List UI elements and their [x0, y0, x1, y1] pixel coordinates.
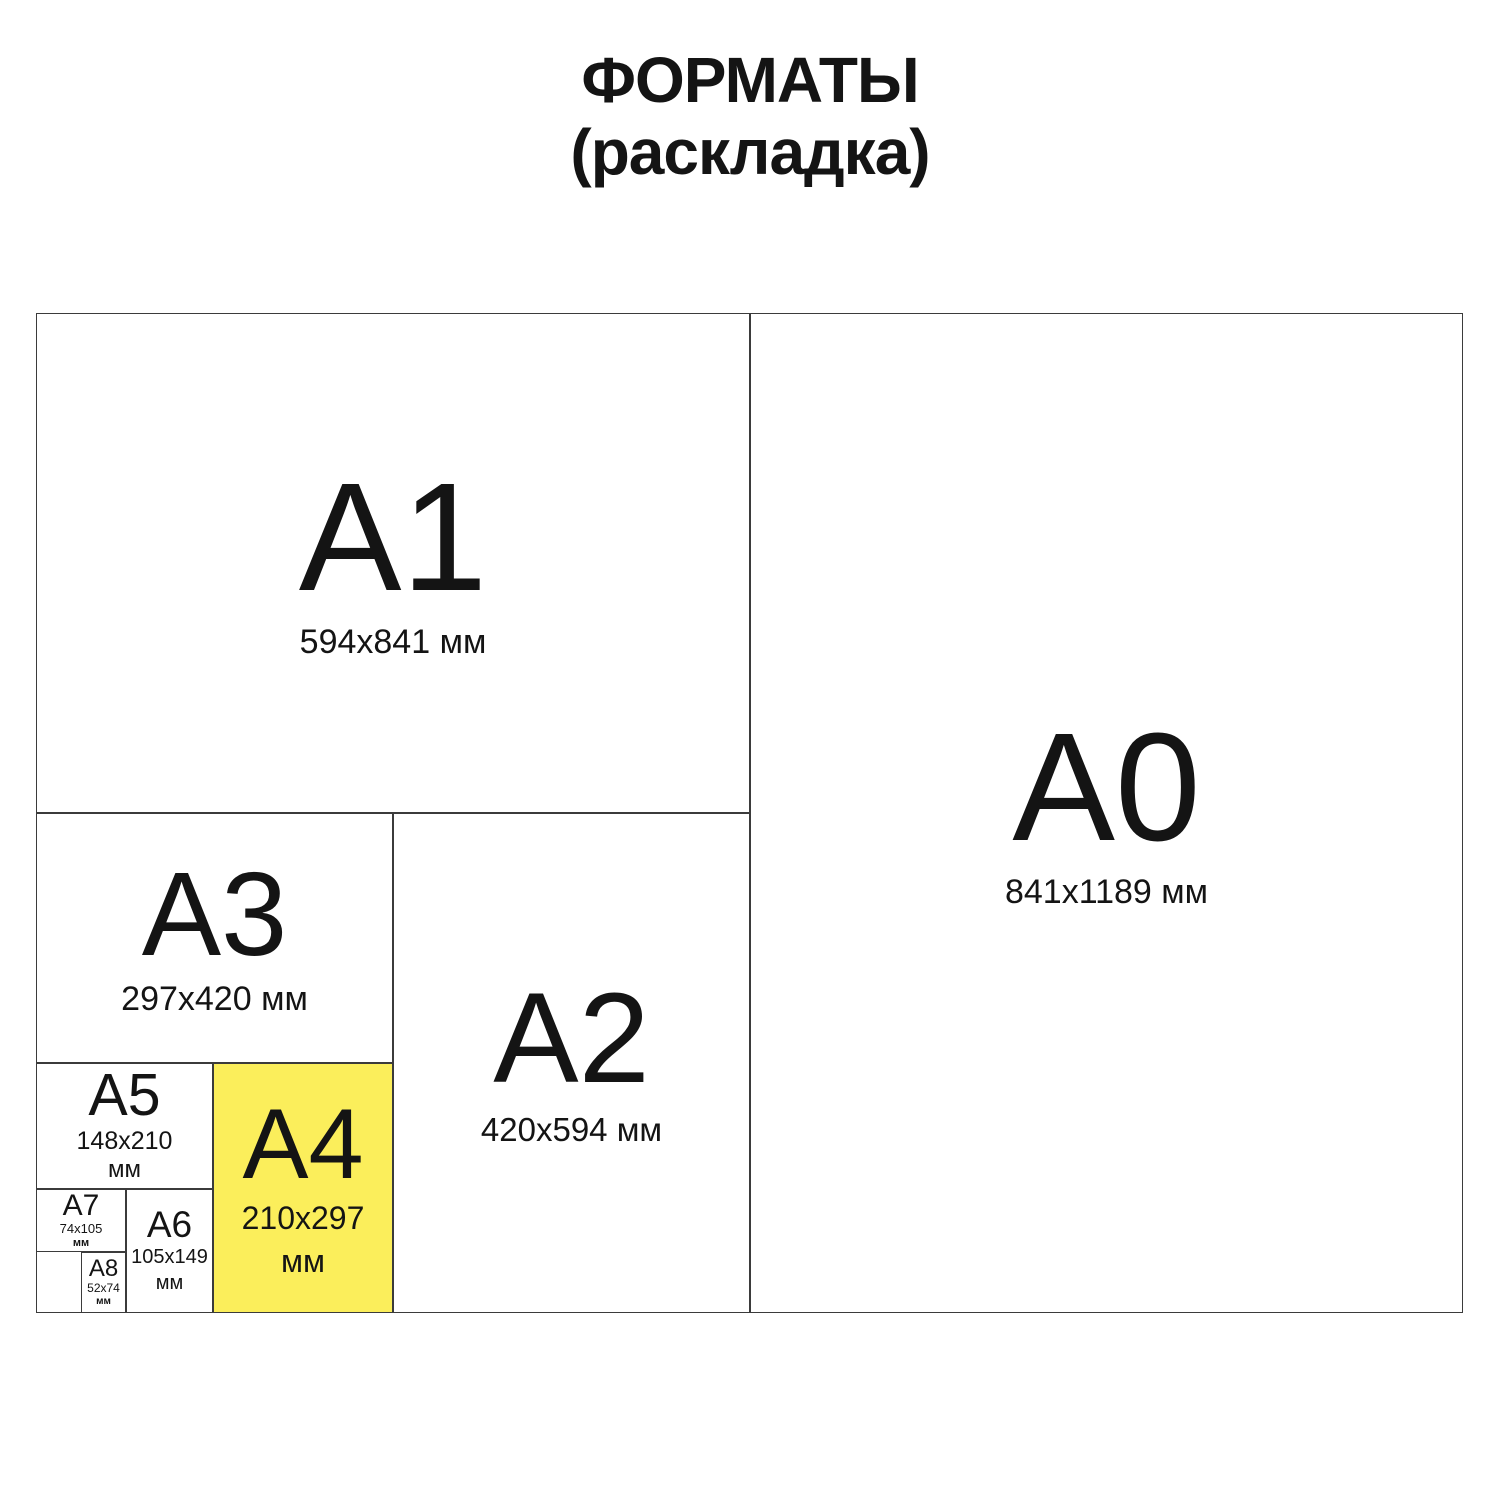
format-size: 52x74 — [87, 1282, 120, 1295]
format-unit: мм — [73, 1237, 89, 1249]
format-unit: мм — [108, 1157, 141, 1183]
format-label: A0 — [1012, 714, 1200, 860]
format-box-a6: A6 105x149 мм — [126, 1189, 213, 1313]
format-size: 74x105 — [60, 1222, 103, 1236]
format-box-a3: A3 297x420 мм — [36, 813, 393, 1063]
format-label: A2 — [493, 978, 650, 1100]
format-box-a0: A0 841x1189 мм — [750, 313, 1463, 1313]
format-label: A8 — [89, 1258, 118, 1280]
format-size: 297x420 мм — [121, 981, 308, 1018]
page-title: ФОРМАТЫ (раскладка) — [0, 44, 1500, 188]
format-size: 420x594 мм — [481, 1112, 662, 1148]
format-box-a5: A5 148x210 мм — [36, 1063, 213, 1189]
format-label: A1 — [299, 464, 487, 610]
title-line-1: ФОРМАТЫ — [0, 44, 1500, 116]
format-size: 210x297 — [242, 1201, 365, 1236]
format-size: 148x210 — [77, 1128, 173, 1156]
format-box-a1: A1 594x841 мм — [36, 313, 750, 813]
format-box-a7: A7 74x105 мм — [36, 1189, 126, 1252]
format-label: A6 — [147, 1208, 192, 1241]
paper-formats-infographic: ФОРМАТЫ (раскладка) A1 594x841 мм A0 841… — [0, 0, 1500, 1500]
format-size: 841x1189 мм — [1005, 874, 1208, 911]
format-label: A7 — [63, 1192, 100, 1219]
format-label: A3 — [142, 858, 288, 971]
format-size: 594x841 мм — [300, 624, 487, 661]
format-unit: мм — [156, 1272, 184, 1294]
format-unit: мм — [96, 1296, 111, 1307]
format-size: 105x149 — [131, 1246, 208, 1268]
format-unit: мм — [281, 1244, 325, 1279]
format-label: A5 — [88, 1069, 160, 1122]
title-line-2: (раскладка) — [0, 116, 1500, 188]
format-box-a2: A2 420x594 мм — [393, 813, 750, 1313]
format-label: A4 — [242, 1097, 363, 1191]
format-box-a4: A4 210x297 мм — [213, 1063, 393, 1313]
format-box-a8: A8 52x74 мм — [81, 1252, 126, 1313]
